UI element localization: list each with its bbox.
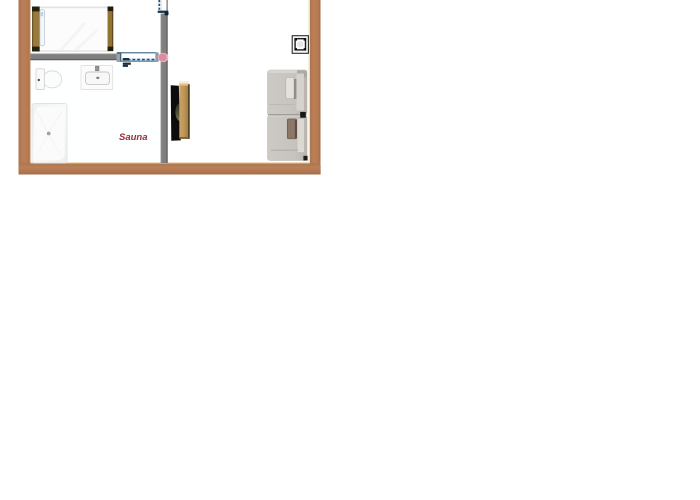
svg-text:Sauna: Sauna bbox=[119, 132, 148, 143]
